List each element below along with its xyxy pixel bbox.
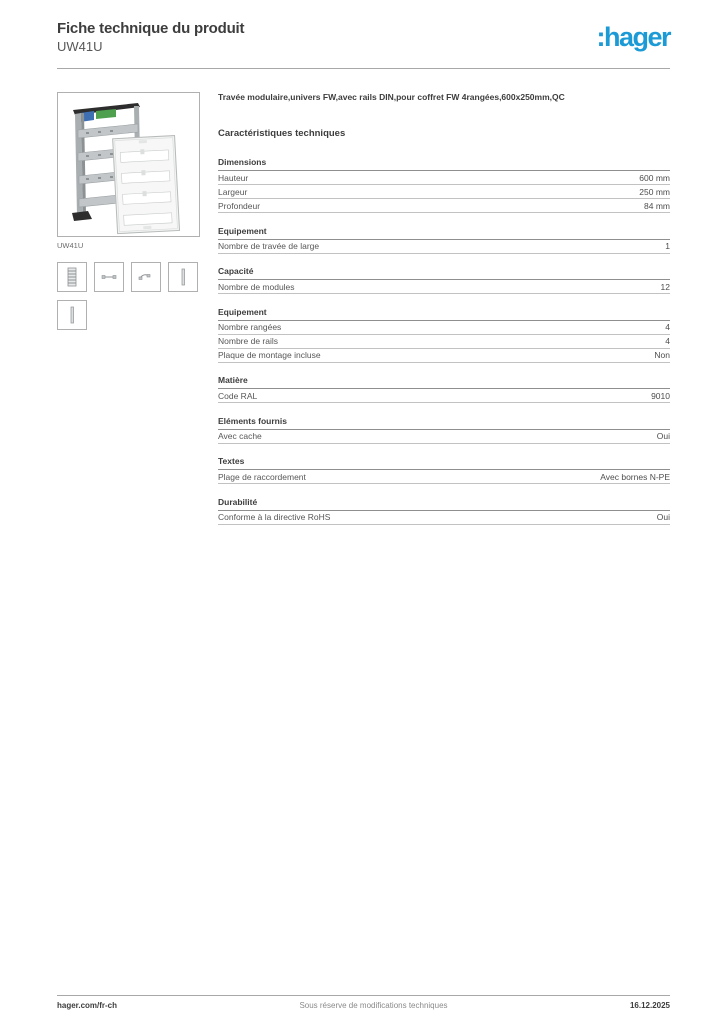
footer-divider (57, 995, 670, 996)
rack-frame-thumb-icon (57, 262, 87, 292)
cover-strip-thumb-icon (168, 262, 198, 292)
spec-section: DurabilitéConforme à la directive RoHSOu… (218, 497, 670, 525)
spec-value: 84 mm (644, 201, 670, 211)
header: Fiche technique du produit UW41U :hager (57, 20, 670, 54)
spec-section-title: Capacité (218, 266, 670, 280)
spec-value: 600 mm (639, 173, 670, 183)
spec-section-title: Durabilité (218, 497, 670, 511)
spec-value: 9010 (651, 391, 670, 401)
spec-section-title: Dimensions (218, 157, 670, 171)
spec-row: Plage de raccordementAvec bornes N-PE (218, 470, 670, 484)
spec-value: Oui (657, 512, 670, 522)
spec-section-title: Textes (218, 456, 670, 470)
spec-section: EquipementNombre de travée de large1 (218, 226, 670, 254)
footer: hager.com/fr-ch Sous réserve de modifica… (57, 1001, 670, 1010)
sidebar: UW41U (57, 92, 200, 537)
spec-label: Nombre rangées (218, 322, 281, 332)
page-title: Fiche technique du produit (57, 20, 244, 37)
spec-section: Eléments fournisAvec cacheOui (218, 416, 670, 444)
footer-notice: Sous réserve de modifications techniques (117, 1001, 630, 1010)
spec-sections: DimensionsHauteur600 mmLargeur250 mmProf… (218, 157, 670, 525)
spec-row: Conforme à la directive RoHSOui (218, 511, 670, 525)
spec-label: Plage de raccordement (218, 472, 306, 482)
spec-value: Avec bornes N-PE (600, 472, 670, 482)
footer-website: hager.com/fr-ch (57, 1001, 117, 1010)
spec-label: Code RAL (218, 391, 257, 401)
spec-row: Code RAL9010 (218, 389, 670, 403)
spec-row: Plaque de montage incluseNon (218, 349, 670, 363)
header-divider (57, 68, 670, 69)
spec-row: Hauteur600 mm (218, 171, 670, 185)
rail-clip-thumb-icon (131, 262, 161, 292)
spec-value: 12 (661, 282, 670, 292)
spec-row: Profondeur84 mm (218, 199, 670, 213)
header-titles: Fiche technique du produit UW41U (57, 20, 244, 54)
product-reference: UW41U (57, 39, 244, 54)
content: UW41U (57, 92, 670, 537)
datasheet-page: Fiche technique du produit UW41U :hager (0, 0, 724, 1024)
hager-logo: :hager (596, 24, 670, 51)
spec-row: Nombre rangées4 (218, 321, 670, 335)
product-image-caption: UW41U (57, 241, 200, 250)
spec-label: Profondeur (218, 201, 260, 211)
spec-row: Nombre de modules12 (218, 280, 670, 294)
spec-label: Plaque de montage incluse (218, 350, 321, 360)
spec-label: Hauteur (218, 173, 248, 183)
spec-section-title: Eléments fournis (218, 416, 670, 430)
spec-section: MatièreCode RAL9010 (218, 375, 670, 403)
spec-value: 1 (665, 241, 670, 251)
spec-row: Nombre de travée de large1 (218, 240, 670, 254)
technical-characteristics-title: Caractéristiques techniques (218, 128, 670, 139)
spec-label: Conforme à la directive RoHS (218, 512, 330, 522)
spec-row: Nombre de rails4 (218, 335, 670, 349)
spec-section-title: Matière (218, 375, 670, 389)
spec-section-title: Equipement (218, 307, 670, 321)
footer-date: 16.12.2025 (630, 1001, 670, 1010)
spec-row: Largeur250 mm (218, 185, 670, 199)
spec-value: 4 (665, 336, 670, 346)
spec-label: Nombre de rails (218, 336, 278, 346)
spec-section: DimensionsHauteur600 mmLargeur250 mmProf… (218, 157, 670, 213)
spec-section: TextesPlage de raccordementAvec bornes N… (218, 456, 670, 484)
product-photo (57, 92, 200, 237)
specs-column: Travée modulaire,univers FW,avec rails D… (218, 92, 670, 537)
spec-value: 4 (665, 322, 670, 332)
spec-section: EquipementNombre rangées4Nombre de rails… (218, 307, 670, 363)
spec-value: 250 mm (639, 187, 670, 197)
modular-bay-illustration (58, 93, 199, 236)
product-description: Travée modulaire,univers FW,avec rails D… (218, 92, 670, 102)
rail-segment-thumb-icon (94, 262, 124, 292)
spec-section: CapacitéNombre de modules12 (218, 266, 670, 294)
spec-row: Avec cacheOui (218, 430, 670, 444)
spec-value: Oui (657, 431, 670, 441)
cover-strip-2-thumb-icon (57, 300, 87, 330)
spec-label: Nombre de modules (218, 282, 295, 292)
spec-value: Non (654, 350, 670, 360)
spec-label: Avec cache (218, 431, 262, 441)
spec-section-title: Equipement (218, 226, 670, 240)
thumbnail-gallery (57, 262, 205, 330)
spec-label: Largeur (218, 187, 247, 197)
spec-label: Nombre de travée de large (218, 241, 319, 251)
